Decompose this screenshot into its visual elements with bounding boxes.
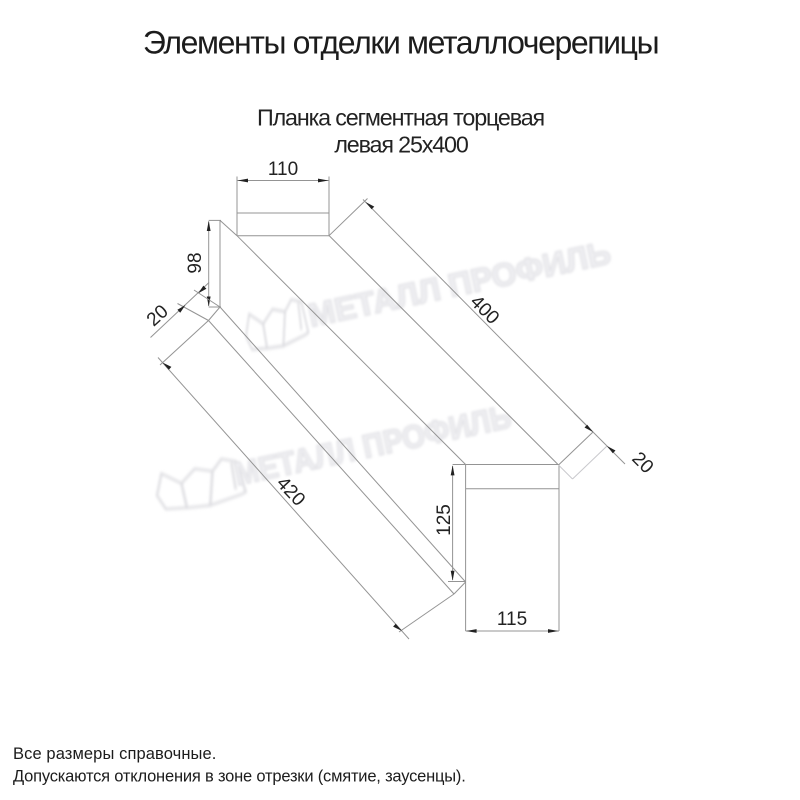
svg-text:Элементы отделки металлочерепи: Элементы отделки металлочерепицы bbox=[143, 24, 658, 60]
svg-text:20: 20 bbox=[143, 301, 173, 331]
svg-text:Допускаются отклонения в зоне: Допускаются отклонения в зоне отрезки (с… bbox=[13, 768, 466, 786]
svg-text:110: 110 bbox=[268, 159, 298, 180]
svg-text:левая 25х400: левая 25х400 bbox=[334, 132, 469, 158]
svg-text:МЕТАЛЛ ПРОФИЛЬ: МЕТАЛЛ ПРОФИЛЬ bbox=[305, 235, 614, 334]
svg-text:Планка сегментная торцевая: Планка сегментная торцевая bbox=[257, 104, 544, 130]
svg-text:20: 20 bbox=[627, 448, 657, 478]
svg-text:Все размеры справочные.: Все размеры справочные. bbox=[13, 745, 216, 763]
svg-text:98: 98 bbox=[185, 252, 206, 273]
svg-text:115: 115 bbox=[497, 609, 527, 630]
svg-text:125: 125 bbox=[434, 504, 455, 536]
